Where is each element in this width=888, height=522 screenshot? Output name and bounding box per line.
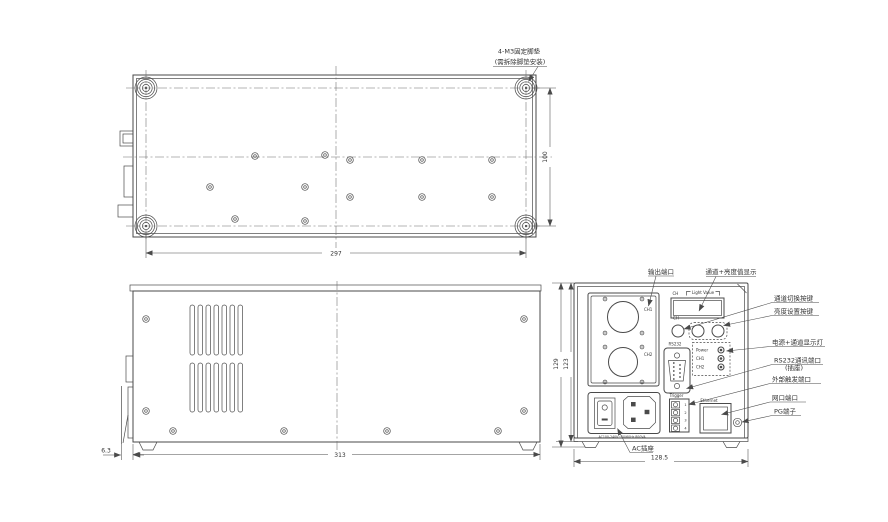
brightness-group-box	[689, 323, 727, 340]
callout-pg: PG端子	[774, 407, 796, 416]
trigger-terminal: Trigger 1 2 3 4	[669, 393, 689, 432]
panel-buttons: CH	[672, 316, 727, 340]
led-ch2-label: CH2	[696, 365, 705, 370]
power-led	[718, 347, 724, 353]
dim-129-label: 129	[553, 358, 560, 370]
screw-holes	[207, 152, 496, 225]
callout-lan: 网口端口	[772, 393, 798, 402]
side-view-outline	[133, 291, 540, 442]
output-port-plate: CH1 CH2	[588, 293, 659, 386]
ethernet-port: Ethernet	[700, 398, 731, 433]
pg-terminal	[733, 418, 741, 426]
drawing-canvas: 4-M3固定脚垫 (需拆除脚垫安装) 297 100	[0, 0, 888, 522]
trigger-pin-4: 4	[684, 426, 687, 430]
display-ch-label: CH	[673, 291, 679, 296]
engineering-drawing: 4-M3固定脚垫 (需拆除脚垫安装) 297 100	[0, 0, 888, 522]
brightness-up-button	[692, 325, 704, 337]
rear-panel-outline	[574, 283, 748, 438]
dim-heights: 123 129	[552, 283, 585, 447]
bracket-right	[716, 292, 720, 296]
ch2-label: CH2	[644, 352, 653, 357]
rear-feet	[582, 442, 740, 448]
side-left-bracket	[122, 356, 134, 444]
callout-ac-socket: AC插座	[632, 444, 654, 453]
trigger-pin-1: 1	[684, 403, 686, 407]
led-ch1-label: CH1	[696, 356, 705, 361]
rear-panel-view: CH1 CH2 CH Light Value CH RS232	[552, 267, 825, 467]
callout-channel-switch: 通道切换按键	[774, 294, 814, 303]
display-window: CH Light Value	[671, 290, 724, 318]
bracket-left	[687, 292, 691, 296]
centerlines	[123, 66, 552, 248]
btn-ch-label: CH	[673, 316, 679, 321]
display-value-label: Light Value	[692, 290, 715, 295]
switch-off-symbol	[602, 405, 607, 410]
side-view: 313 6.3	[101, 281, 541, 460]
rs232-label: RS232	[669, 342, 682, 347]
vent-slots	[190, 305, 243, 412]
ch1-led	[718, 356, 724, 362]
ch2-led	[718, 364, 724, 370]
side-screw-holes	[143, 316, 528, 435]
ethernet-label: Ethernet	[700, 398, 718, 403]
dim-123-label: 123	[563, 358, 570, 370]
dim-100-label: 100	[542, 151, 549, 163]
ch1-connector	[608, 302, 639, 333]
callout-display: 通道+亮度值显示	[706, 267, 757, 276]
rs232-connector: RS232	[664, 342, 690, 394]
brightness-down-button	[712, 325, 724, 337]
dim-128-5: 128.5	[574, 449, 748, 467]
rs232-pins	[673, 362, 681, 380]
trigger-pin-2: 2	[684, 411, 686, 415]
corner-edge	[738, 284, 747, 293]
ch1-label: CH1	[644, 307, 653, 312]
dim-6-3-label: 6.3	[101, 448, 111, 455]
side-feet	[139, 442, 537, 450]
ac-inlet-module: AC100-240V~50/60Hz 800VA	[588, 393, 660, 439]
callout-ext-trigger: 外部触发端口	[772, 375, 811, 384]
dim-6-3: 6.3	[101, 444, 144, 460]
dim-128-5-label: 128.5	[651, 455, 668, 462]
dim-313-label: 313	[334, 452, 346, 459]
ch2-connector	[609, 348, 638, 377]
trigger-label: Trigger	[669, 393, 684, 398]
channel-button	[672, 325, 684, 337]
power-switch	[595, 398, 616, 429]
side-clips	[118, 131, 133, 217]
led-indicator-panel: Power CH1 CH2	[693, 343, 731, 376]
bottom-view: 4-M3固定脚垫 (需拆除脚垫安装) 297 100	[118, 47, 556, 259]
top-lip	[130, 285, 541, 291]
bottom-view-outline	[133, 75, 536, 237]
callout-foot-pads: 4-M3固定脚垫 (需拆除脚垫安装)	[493, 47, 547, 82]
callout-output-port: 输出端口	[648, 267, 674, 276]
callout-brightness-set: 亮度设置按键	[774, 307, 814, 316]
dim-297-label: 297	[330, 251, 342, 258]
foot-pad-note-line1: 4-M3固定脚垫	[498, 47, 541, 56]
ac-socket	[624, 397, 656, 429]
dim-313: 313	[133, 444, 540, 460]
callout-power-leds: 电源+通道显示灯	[772, 338, 823, 347]
trigger-pin-3: 3	[684, 419, 686, 423]
led-power-label: Power	[696, 348, 708, 353]
foot-pad-note-line2: (需拆除脚垫安装)	[495, 57, 546, 66]
